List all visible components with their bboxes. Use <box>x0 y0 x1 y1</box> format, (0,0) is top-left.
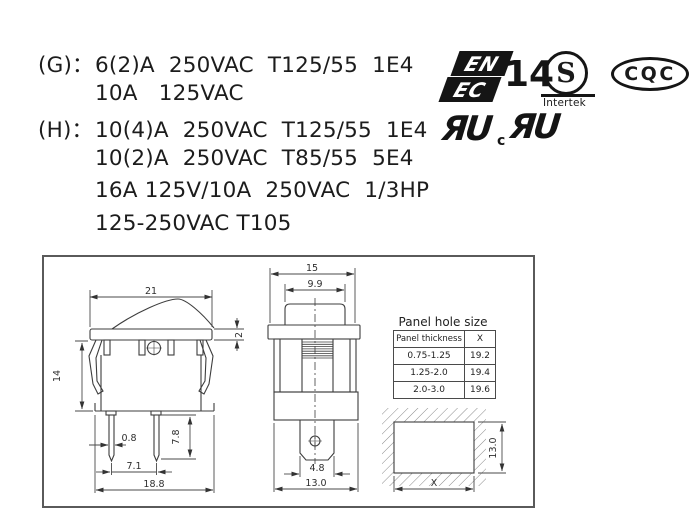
rib-lines <box>302 342 333 358</box>
rating-line: (G)：6(2)A 250VAC T125/55 1E4 <box>38 48 414 74</box>
dim-overall-width: 21 <box>145 286 157 297</box>
dim-bezel-thickness: 2 <box>234 332 245 338</box>
enec-band-bottom: EC <box>438 77 501 102</box>
cul-recognized-icon: ЯU <box>508 110 559 144</box>
pin-shoulder <box>106 411 116 415</box>
terminal-pin-left <box>109 415 114 461</box>
table-row: 2.0-3.0 19.6 <box>394 382 496 399</box>
table-row: 0.75-1.25 19.2 <box>394 348 496 365</box>
table-header-x: X <box>465 331 496 348</box>
datasheet-page: (G)：6(2)A 250VAC T125/55 1E4 10A 125VAC … <box>0 0 700 526</box>
rating-group-label: (H)： <box>38 113 95 144</box>
ul-recognized-icon: ЯU <box>440 112 491 146</box>
dim-rocker-width: 9.9 <box>307 279 322 290</box>
rating-text: 125-250VAC T105 <box>95 211 292 236</box>
enec-logo: EN EC 14 <box>440 50 540 106</box>
dim-front-overall-width: 15 <box>306 263 318 274</box>
panel-hole-table: Panel hole size Panel thickness X 0.75-1… <box>393 315 493 399</box>
bezel-tab <box>104 340 110 355</box>
side-view-drawing <box>89 299 214 461</box>
enec-text-en: EN <box>461 52 502 76</box>
technical-drawing-frame: 21 2 14 0.8 7.8 7.1 18.8 <box>42 255 535 508</box>
intertek-s-icon: S <box>544 51 588 95</box>
table-cell-thickness: 0.75-1.25 <box>394 348 465 365</box>
rating-line: (H)：10(4)A 250VAC T125/55 1E4 <box>38 113 428 139</box>
dim-pin-pitch: 7.1 <box>126 461 141 472</box>
table-cell-x: 19.6 <box>465 382 496 399</box>
rating-line: 10(2)A 250VAC T85/55 5E4 <box>38 146 414 172</box>
dim-front-body-width: 13.0 <box>305 478 326 489</box>
rating-line: 125-250VAC T105 <box>38 211 292 237</box>
side-view-dimension-labels: 21 2 14 0.8 7.8 7.1 18.8 <box>52 286 245 490</box>
dim-cutout-height: 13.0 <box>488 437 499 458</box>
cqc-logo: CQC <box>611 57 689 91</box>
dim-terminal-width: 4.8 <box>309 463 324 474</box>
rating-text: 10A 125VAC <box>95 81 244 106</box>
rating-line: 16A 125V/10A 250VAC 1/3HP <box>38 178 429 204</box>
table-cell-thickness: 2.0-3.0 <box>394 382 465 399</box>
dim-body-height: 14 <box>52 370 63 382</box>
enec-text-ec: EC <box>450 78 489 102</box>
switch-body-side <box>95 355 214 411</box>
rating-text: 10(2)A 250VAC T85/55 5E4 <box>95 146 414 171</box>
rating-line: 10A 125VAC <box>38 81 244 107</box>
front-view-dimension-labels: 15 9.9 4.8 13.0 <box>305 263 326 489</box>
cutout-rect <box>394 422 474 473</box>
cqc-text: CQC <box>624 63 676 85</box>
panel-cutout-drawing <box>382 408 486 486</box>
rating-group-label: (G)： <box>38 48 95 79</box>
table-cell-x: 19.4 <box>465 365 496 382</box>
table-cell-thickness: 1.25-2.0 <box>394 365 465 382</box>
table-row: 1.25-2.0 19.4 <box>394 365 496 382</box>
table-header-panel-thickness: Panel thickness <box>394 331 465 348</box>
bezel-side <box>90 329 212 340</box>
bezel-tab <box>139 340 145 355</box>
ul-canada-prefix: c <box>497 134 505 148</box>
rating-text: 6(2)A 250VAC T125/55 1E4 <box>95 53 414 78</box>
bezel-front <box>268 325 360 339</box>
table-cell-x: 19.2 <box>465 348 496 365</box>
bezel-tab <box>168 340 174 355</box>
dim-base-width: 18.8 <box>143 479 164 490</box>
dim-pin-width: 0.8 <box>121 433 136 444</box>
front-view-dimensions <box>270 268 358 492</box>
lower-housing <box>274 392 358 420</box>
front-view-drawing <box>268 298 360 464</box>
pivot-centermark <box>146 341 162 356</box>
dim-pin-length: 7.8 <box>171 429 182 444</box>
intertek-logo: S Intertek <box>541 51 597 109</box>
dim-cutout-width: X <box>431 478 438 489</box>
rocker-actuator-profile <box>112 299 214 329</box>
rating-text: 16A 125V/10A 250VAC 1/3HP <box>95 178 429 203</box>
panel-hole-table-title: Panel hole size <box>393 315 493 329</box>
rating-text: 10(4)A 250VAC T125/55 1E4 <box>95 118 428 143</box>
intertek-s-letter: S <box>556 58 576 89</box>
pin-shoulder <box>151 411 161 415</box>
terminal-pin-right <box>154 415 159 461</box>
